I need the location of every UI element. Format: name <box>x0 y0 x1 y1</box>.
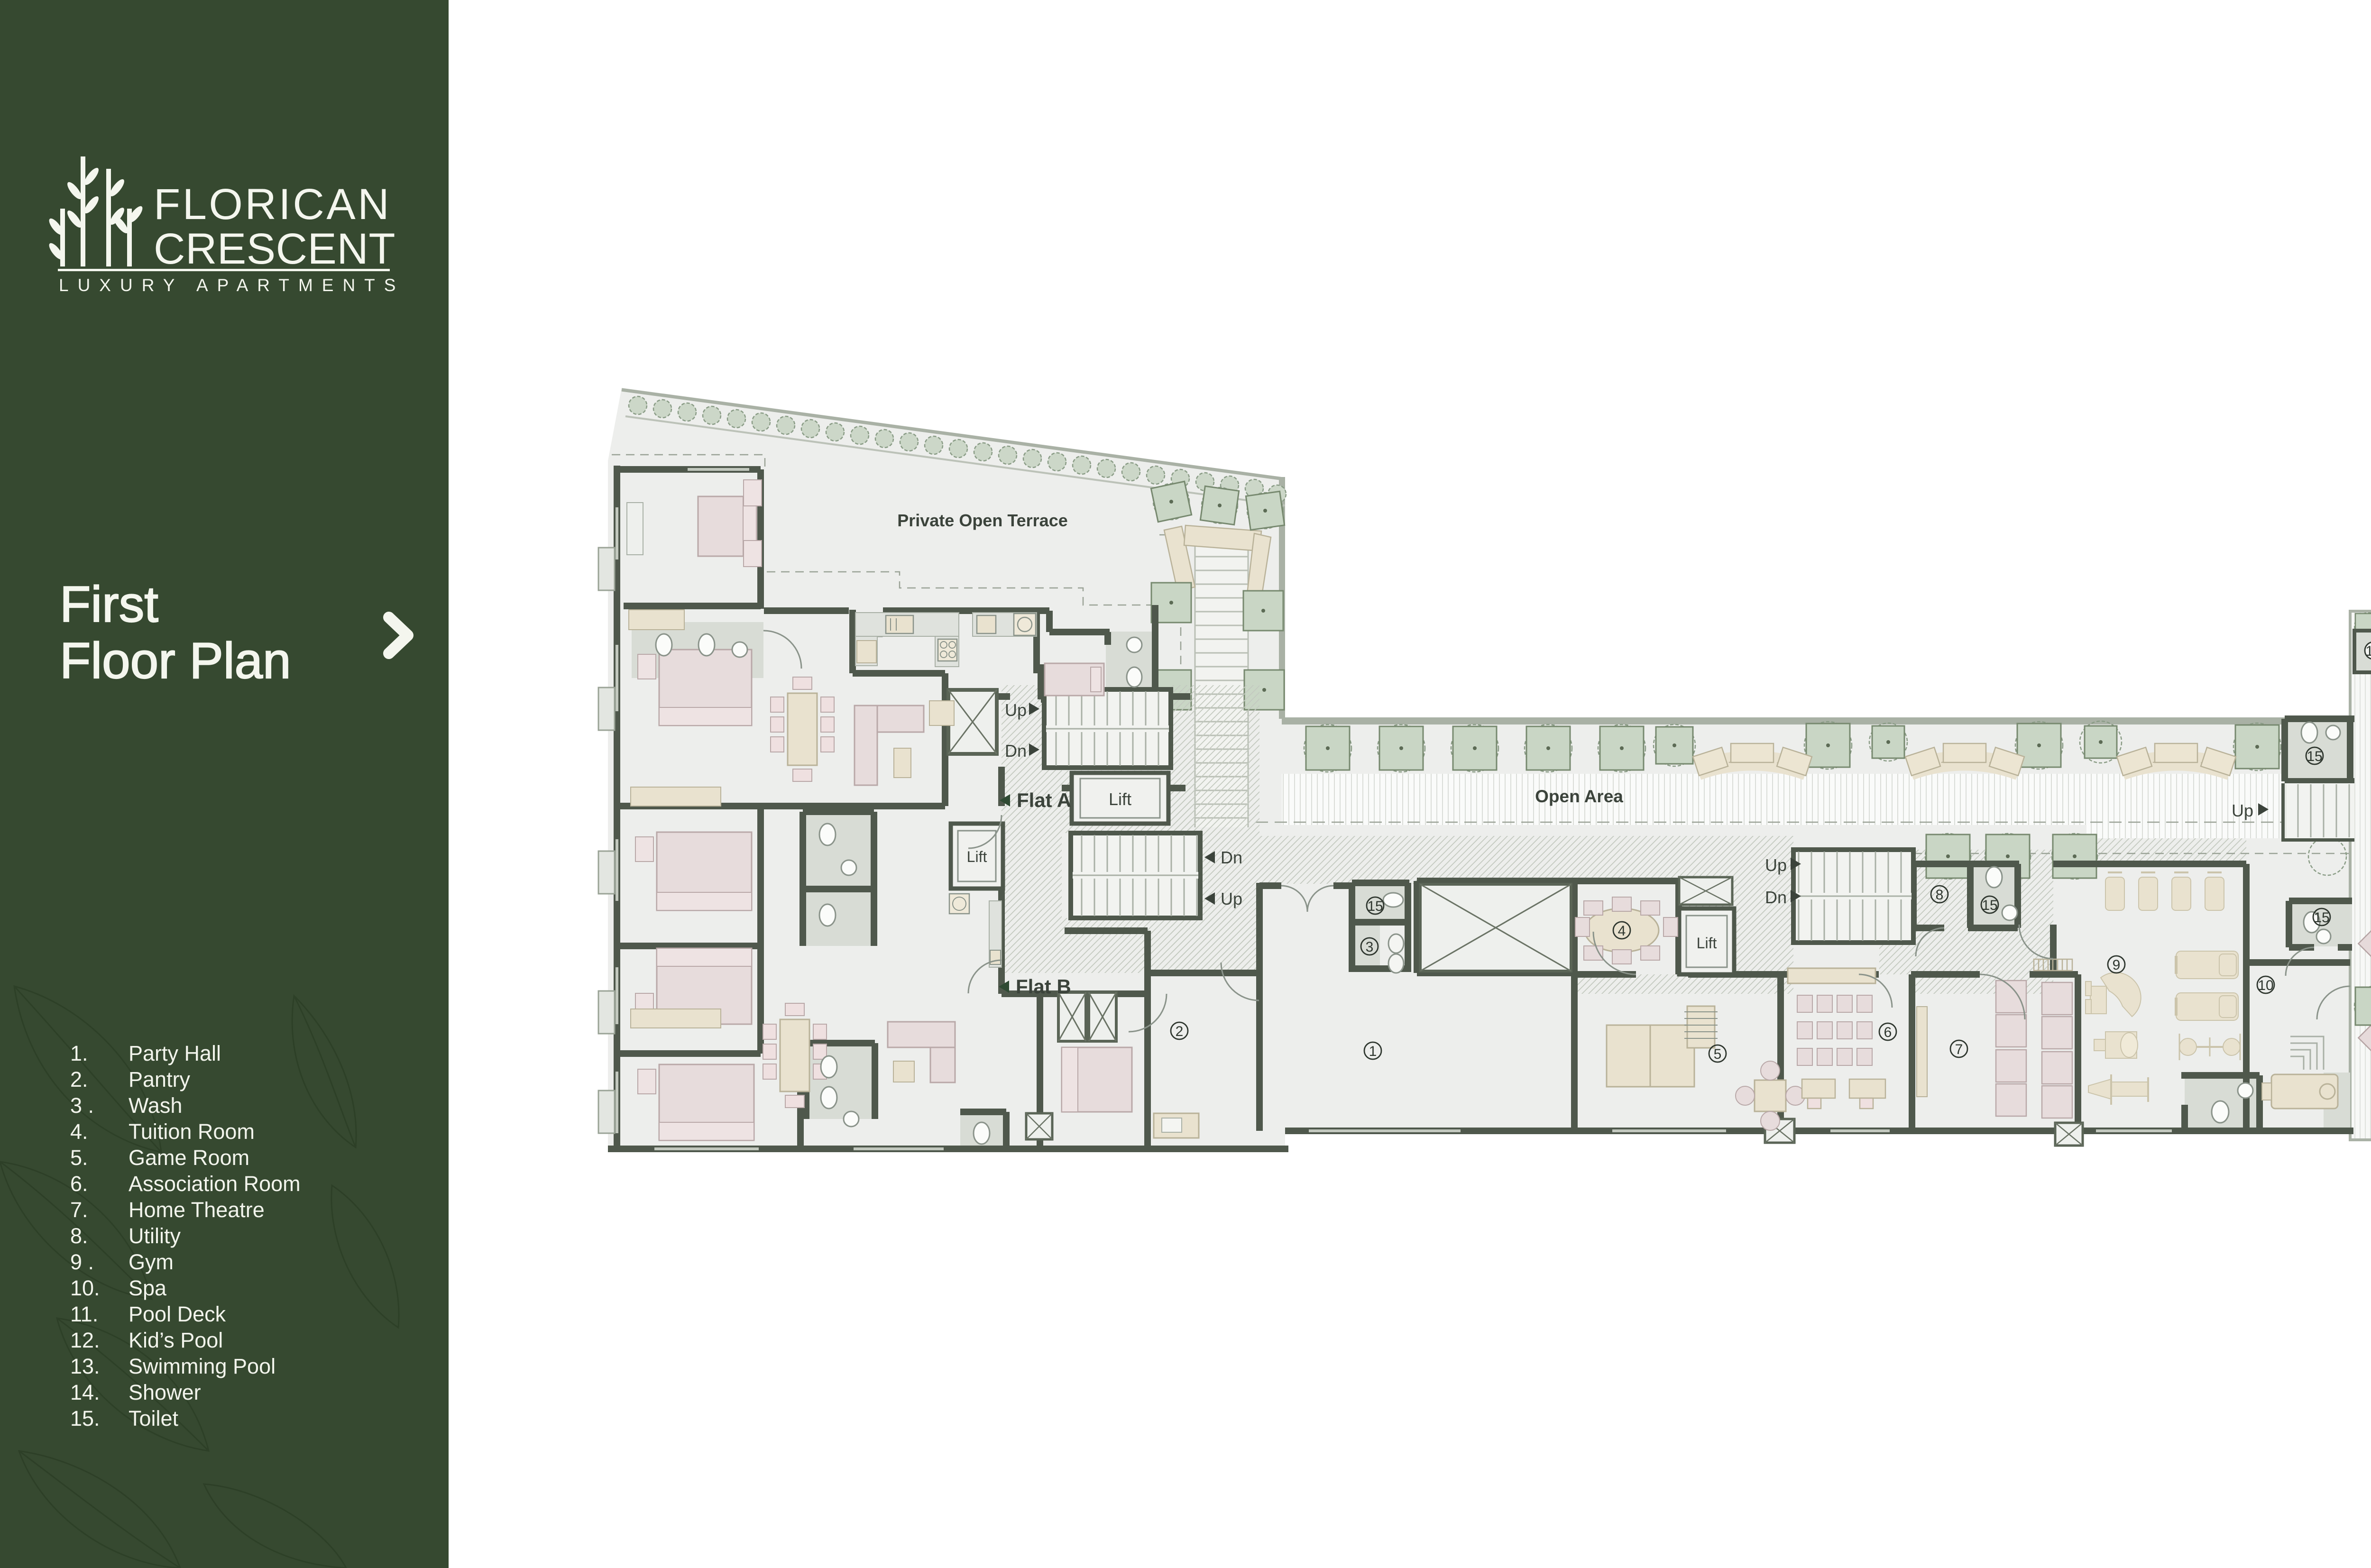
svg-text:4: 4 <box>1618 923 1626 939</box>
svg-text:Association Room: Association Room <box>129 1172 301 1196</box>
svg-text:Toilet: Toilet <box>129 1406 179 1430</box>
svg-text:Pool Deck: Pool Deck <box>129 1302 226 1326</box>
svg-text:1.: 1. <box>70 1041 88 1065</box>
svg-text:6: 6 <box>1884 1025 1892 1040</box>
svg-text:Dn: Dn <box>1005 741 1027 761</box>
svg-text:Up: Up <box>1005 700 1027 720</box>
svg-text:Private Open Terrace: Private Open Terrace <box>897 511 1068 530</box>
svg-text:Lift: Lift <box>967 848 987 865</box>
svg-text:Kid’s Pool: Kid’s Pool <box>129 1328 223 1352</box>
svg-text:3: 3 <box>1366 939 1374 955</box>
svg-text:4.: 4. <box>70 1119 88 1144</box>
svg-text:Open Area: Open Area <box>1535 787 1623 806</box>
svg-text:5.: 5. <box>70 1146 88 1170</box>
svg-text:Utility: Utility <box>129 1224 181 1248</box>
svg-text:FLORICAN: FLORICAN <box>154 180 391 229</box>
svg-text:LUXURY APARTMENTS: LUXURY APARTMENTS <box>59 275 404 295</box>
svg-text:8: 8 <box>1936 887 1944 903</box>
svg-text:Wash: Wash <box>129 1093 182 1118</box>
svg-text:Pantry: Pantry <box>129 1067 191 1091</box>
svg-text:13.: 13. <box>70 1354 100 1378</box>
svg-text:14.: 14. <box>70 1380 100 1404</box>
svg-text:15: 15 <box>2307 749 2322 764</box>
svg-text:8.: 8. <box>70 1224 88 1248</box>
svg-text:Home Theatre: Home Theatre <box>129 1198 265 1222</box>
svg-text:2: 2 <box>1176 1024 1184 1039</box>
svg-text:10: 10 <box>2258 978 2273 993</box>
svg-text:Game Room: Game Room <box>129 1146 249 1170</box>
svg-text:1: 1 <box>1369 1044 1377 1059</box>
svg-text:Swimming Pool: Swimming Pool <box>129 1354 276 1378</box>
svg-text:Dn: Dn <box>1765 888 1787 907</box>
svg-text:Gym: Gym <box>129 1250 174 1274</box>
svg-text:Flat B: Flat B <box>1016 975 1071 998</box>
svg-text:12.: 12. <box>70 1328 100 1352</box>
svg-text:15: 15 <box>1367 899 1383 914</box>
svg-text:First: First <box>60 576 158 633</box>
svg-text:Dn: Dn <box>1221 848 1242 867</box>
svg-text:Up: Up <box>1221 889 1242 908</box>
svg-text:Lift: Lift <box>1697 935 1717 952</box>
svg-text:9 .: 9 . <box>70 1250 94 1274</box>
svg-text:Up: Up <box>1765 855 1787 875</box>
svg-text:Shower: Shower <box>129 1380 201 1404</box>
svg-text:15: 15 <box>1982 898 1997 913</box>
svg-text:7.: 7. <box>70 1198 88 1222</box>
svg-text:Floor Plan: Floor Plan <box>60 632 291 689</box>
svg-text:Flat A: Flat A <box>1017 789 1071 811</box>
svg-text:15: 15 <box>2314 910 2329 926</box>
svg-text:6.: 6. <box>70 1172 88 1196</box>
svg-text:15.: 15. <box>70 1406 100 1430</box>
svg-text:Tuition Room: Tuition Room <box>129 1119 255 1144</box>
svg-text:Party Hall: Party Hall <box>129 1041 221 1065</box>
svg-text:14: 14 <box>2365 643 2371 659</box>
svg-text:5: 5 <box>1714 1046 1722 1062</box>
svg-text:3 .: 3 . <box>70 1093 94 1118</box>
svg-text:11.: 11. <box>70 1302 98 1326</box>
svg-text:Spa: Spa <box>129 1276 167 1300</box>
svg-text:9: 9 <box>2113 957 2121 973</box>
svg-text:Lift: Lift <box>1109 789 1131 809</box>
svg-text:2.: 2. <box>70 1067 88 1091</box>
svg-text:7: 7 <box>1955 1042 1963 1057</box>
svg-text:Up: Up <box>2232 801 2253 820</box>
svg-text:CRESCENT: CRESCENT <box>154 225 395 273</box>
svg-text:10.: 10. <box>70 1276 100 1300</box>
